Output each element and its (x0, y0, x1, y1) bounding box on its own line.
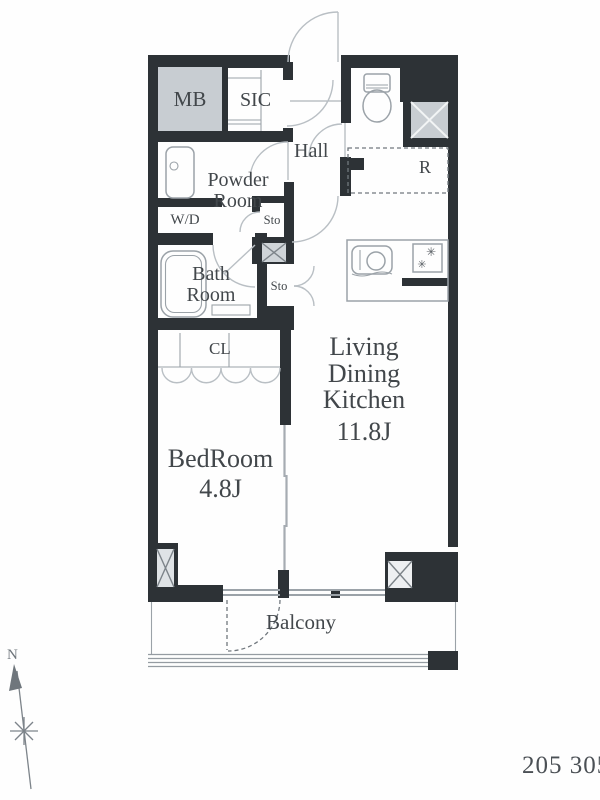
stove-burner-icon: ✳ (417, 258, 426, 271)
hall-ldk-door-arc (292, 196, 338, 242)
room-label-bath-room: Bath Room (176, 264, 246, 305)
balcony-window-lines (223, 590, 385, 595)
storage-lower-door-arcs (294, 266, 314, 306)
room-label-closet: CL (209, 340, 231, 357)
room-label-ldk: Living Dining Kitchen 11.8J (298, 334, 430, 445)
bath-room-text: Bath (192, 264, 230, 285)
bath-room-text: Room (187, 285, 236, 306)
powder-room-text: Room (214, 191, 263, 212)
unit-numbers: 205 305 (522, 753, 600, 778)
refrigerator-text: R (419, 157, 431, 177)
ldk-text: Dining (328, 361, 400, 388)
balcony-text: Balcony (266, 610, 336, 634)
room-label-refrigerator: R (419, 158, 431, 176)
kitchen-counter-icon: ✳ ✳ (347, 240, 448, 301)
ldk-size-text: 11.8J (337, 419, 392, 446)
shoe-closet-door-arc (287, 80, 333, 126)
unit-numbers-text: 205 305 (522, 752, 600, 779)
room-label-washer-dryer: W/D (158, 207, 212, 233)
room-label-balcony: Balcony (266, 612, 336, 633)
hall-text: Hall (294, 140, 328, 162)
toilet-icon (363, 74, 391, 122)
compass-north-label: N (7, 648, 18, 663)
compass-icon (9, 664, 38, 789)
storage-text: Sto (271, 280, 288, 293)
room-label-hall: Hall (294, 141, 328, 161)
north-text: N (7, 647, 18, 663)
washer-dryer-text: W/D (170, 213, 199, 228)
room-label-storage-upper: Sto (258, 203, 286, 237)
meter-box-text: MB (174, 89, 207, 110)
room-label-shoe-closet: SIC (228, 68, 283, 131)
room-label-storage-lower: Sto (264, 266, 294, 306)
powder-room-text: Powder (207, 170, 268, 191)
storage-text: Sto (264, 214, 281, 227)
ldk-text: Living (329, 334, 398, 361)
bedroom-size-text: 4.8J (199, 474, 242, 504)
bedroom-text: BedRoom (168, 444, 273, 474)
storage-upper-door-arc (240, 212, 260, 232)
ldk-text: Kitchen (323, 387, 405, 414)
closet-text: CL (209, 339, 231, 358)
closet-door-arcs (162, 368, 280, 383)
floor-plan: ✳ ✳ (0, 0, 600, 800)
washbasin-icon (166, 147, 194, 198)
balcony-railing (148, 651, 458, 670)
room-label-bedroom: BedRoom 4.8J (151, 444, 290, 504)
shoe-closet-text: SIC (240, 90, 271, 110)
stove-burner-icon: ✳ (426, 245, 436, 259)
room-label-meter-box: MB (158, 67, 222, 131)
refrigerator-space-outline (348, 148, 448, 193)
